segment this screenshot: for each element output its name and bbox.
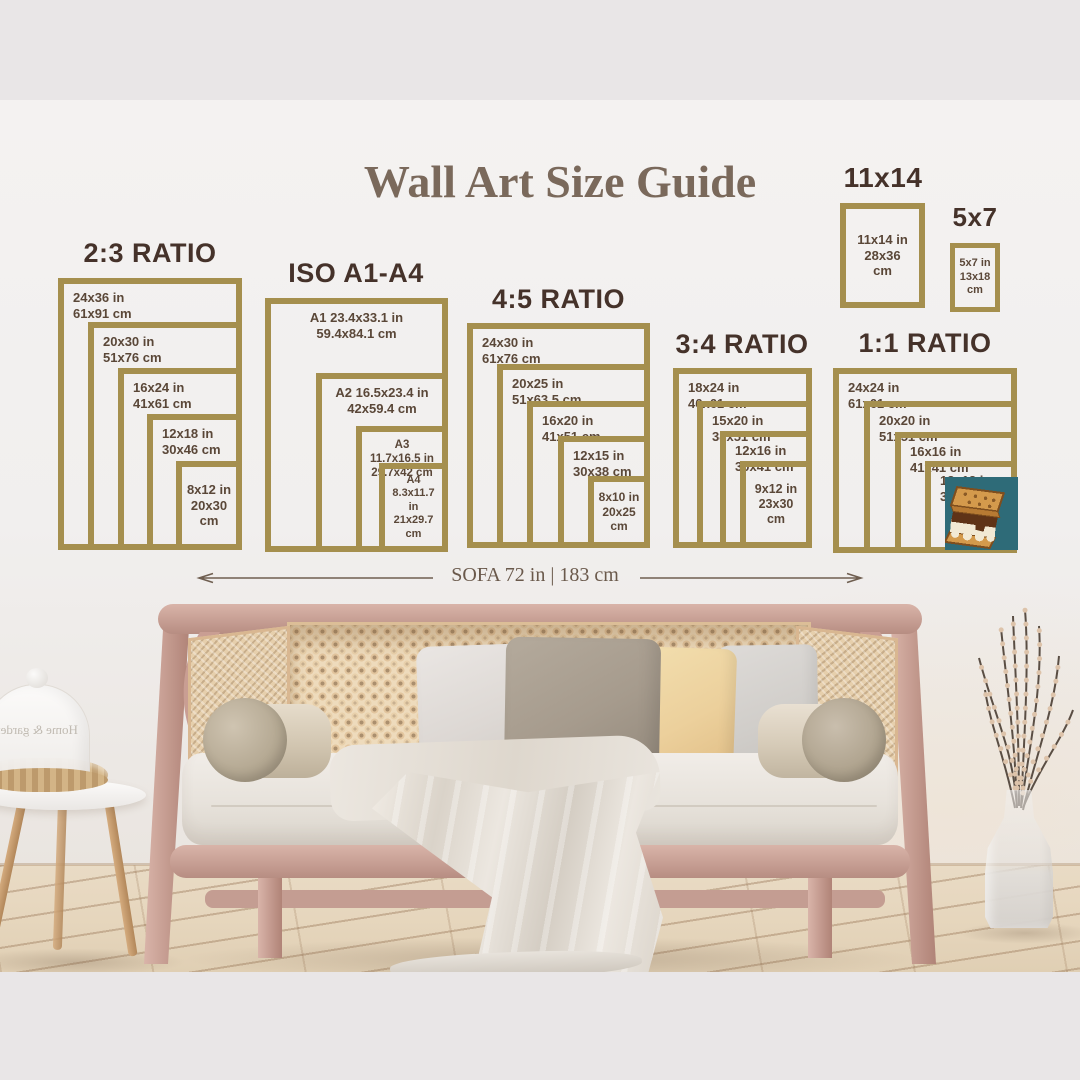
pussy-willow-branches (955, 598, 1080, 813)
dimension-arrow-right (640, 571, 865, 585)
sofa-dimension-label: SOFA 72 in | 183 cm (425, 564, 645, 587)
heading-4-5-ratio: 4:5 RATIO (467, 284, 650, 315)
heading-1-1-ratio: 1:1 RATIO (833, 328, 1017, 359)
smore-sticker (945, 477, 1018, 550)
heading-2-3-ratio: 2:3 RATIO (58, 238, 242, 269)
size-frame: A4 8.3x11.7 in 21x29.7 cm (379, 463, 448, 552)
size-frame: 8x10 in20x25 cm (588, 476, 650, 548)
bolster-right (758, 698, 886, 786)
size-group-4-5: 24x30 in61x76 cm 20x25 in51x63.5 cm 16x2… (467, 323, 650, 548)
size-label: 5x7 in13x18 cm (955, 248, 995, 307)
size-group-iso: A1 23.4x33.1 in59.4x84.1 cm A2 16.5x23.4… (265, 298, 448, 552)
size-group-11x14: 11x14 in28x36 cm (840, 203, 925, 308)
bolster-left (203, 698, 331, 786)
size-frame: 8x12 in20x30 cm (176, 461, 242, 550)
size-group-2-3: 24x36 in61x91 cm 20x30 in51x76 cm 16x24 … (58, 278, 242, 550)
size-label: 12x15 in30x38 cm (573, 448, 632, 480)
sofa-front-right-leg (808, 878, 832, 958)
bolster-right-cap (802, 698, 886, 782)
heading-11x14: 11x14 (836, 162, 930, 194)
heading-5x7: 5x7 (942, 202, 1008, 233)
size-group-3-4: 18x24 in46x61 cm 15x20 in38x51 cm 12x16 … (673, 368, 812, 548)
heading-iso-a1-a4: ISO A1-A4 (248, 258, 464, 289)
size-label: A1 23.4x33.1 in59.4x84.1 cm (277, 310, 436, 342)
sofa-front-left-leg (258, 878, 282, 958)
size-label: 24x30 in61x76 cm (482, 335, 541, 367)
size-frame: 9x12 in23x30 cm (740, 461, 812, 548)
size-label: 9x12 in23x30 cm (746, 467, 806, 542)
size-label: 24x36 in61x91 cm (73, 290, 132, 322)
size-label: 11x14 in28x36 cm (846, 209, 919, 302)
size-group-5x7: 5x7 in13x18 cm (950, 243, 1000, 312)
smore-icon (945, 477, 1018, 550)
cloche-knob (26, 668, 48, 688)
size-label: 20x30 in51x76 cm (103, 334, 162, 366)
bolster-left-cap (203, 698, 287, 782)
size-label: A2 16.5x23.4 in42x59.4 cm (328, 385, 436, 417)
size-label: A4 8.3x11.7 in 21x29.7 cm (385, 469, 442, 546)
cloche-mirrored-text: Home & garden (0, 722, 88, 739)
size-label: 8x12 in20x30 cm (182, 467, 236, 544)
size-label: 8x10 in20x25 cm (594, 482, 644, 542)
heading-3-4-ratio: 3:4 RATIO (662, 329, 822, 360)
size-label: 12x18 in30x46 cm (162, 426, 221, 458)
dimension-arrow-left (195, 571, 433, 585)
wall-art-size-guide-image: Home & garden (0, 0, 1080, 1080)
page-title: Wall Art Size Guide (290, 155, 830, 208)
size-label: 16x24 in41x61 cm (133, 380, 192, 412)
